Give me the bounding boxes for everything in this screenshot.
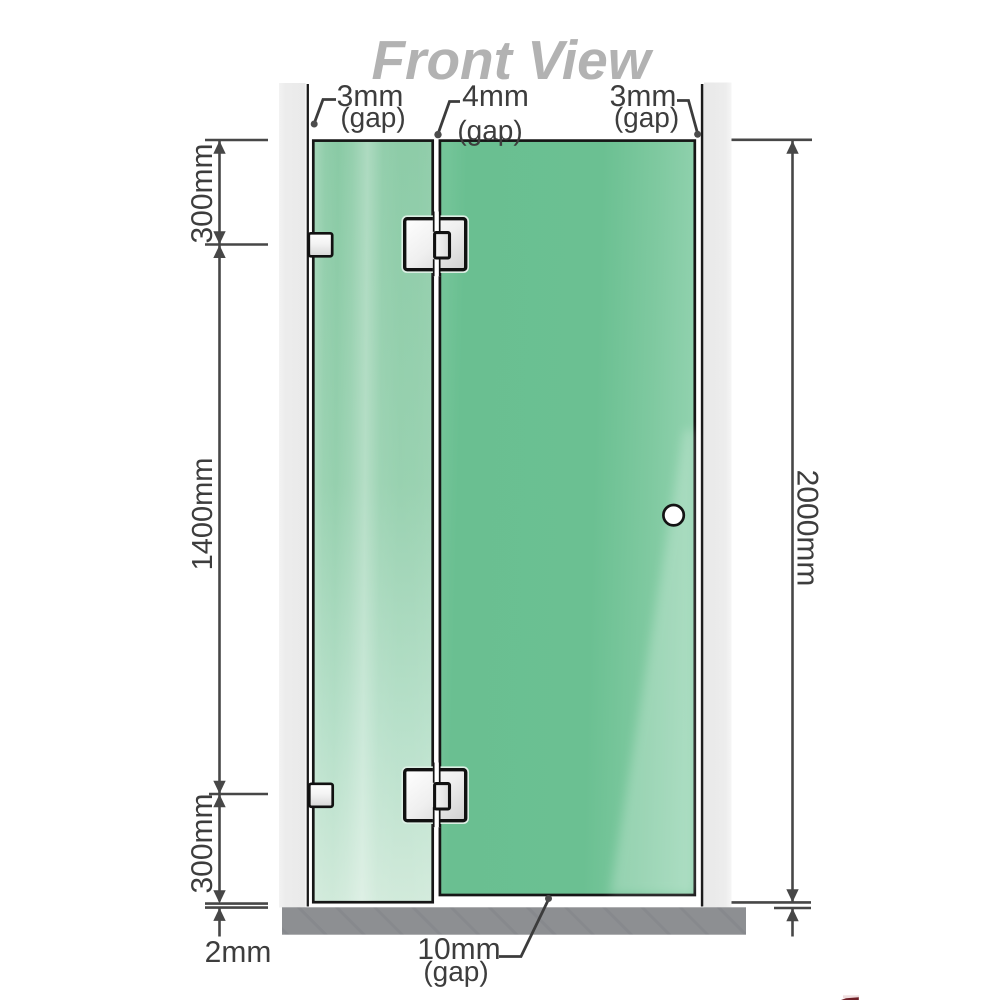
- svg-text:(gap): (gap): [614, 102, 679, 133]
- svg-text:(gap): (gap): [340, 102, 405, 133]
- svg-text:1400mm: 1400mm: [187, 458, 219, 571]
- svg-text:2000mm: 2000mm: [791, 470, 824, 587]
- svg-text:(gap): (gap): [457, 115, 522, 146]
- svg-text:(gap): (gap): [423, 956, 488, 987]
- svg-text:300mm: 300mm: [186, 143, 219, 243]
- svg-text:300mm: 300mm: [186, 793, 219, 893]
- svg-text:2mm: 2mm: [205, 936, 272, 969]
- svg-text:4mm: 4mm: [462, 80, 529, 113]
